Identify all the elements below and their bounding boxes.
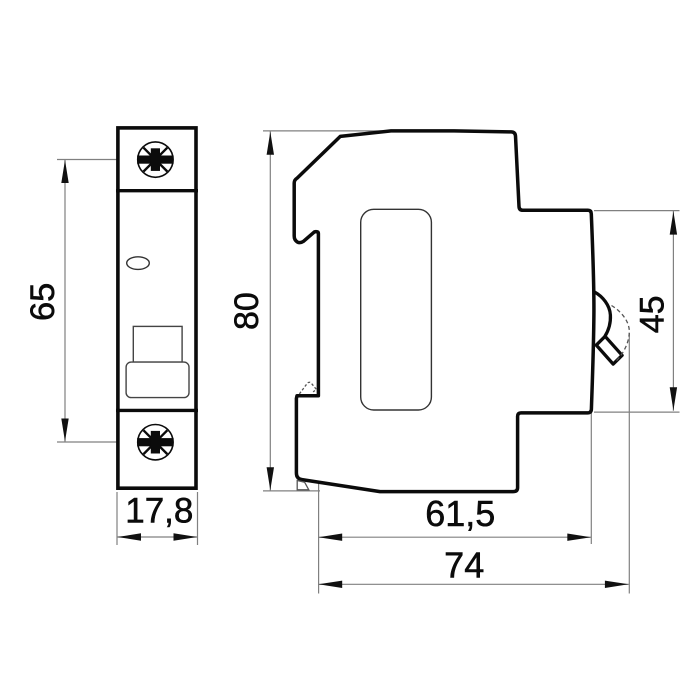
svg-text:80: 80: [228, 292, 266, 330]
svg-text:74: 74: [444, 544, 484, 585]
svg-text:17,8: 17,8: [125, 492, 193, 531]
svg-text:61,5: 61,5: [425, 493, 495, 534]
svg-text:45: 45: [633, 295, 671, 333]
svg-text:65: 65: [24, 283, 62, 321]
